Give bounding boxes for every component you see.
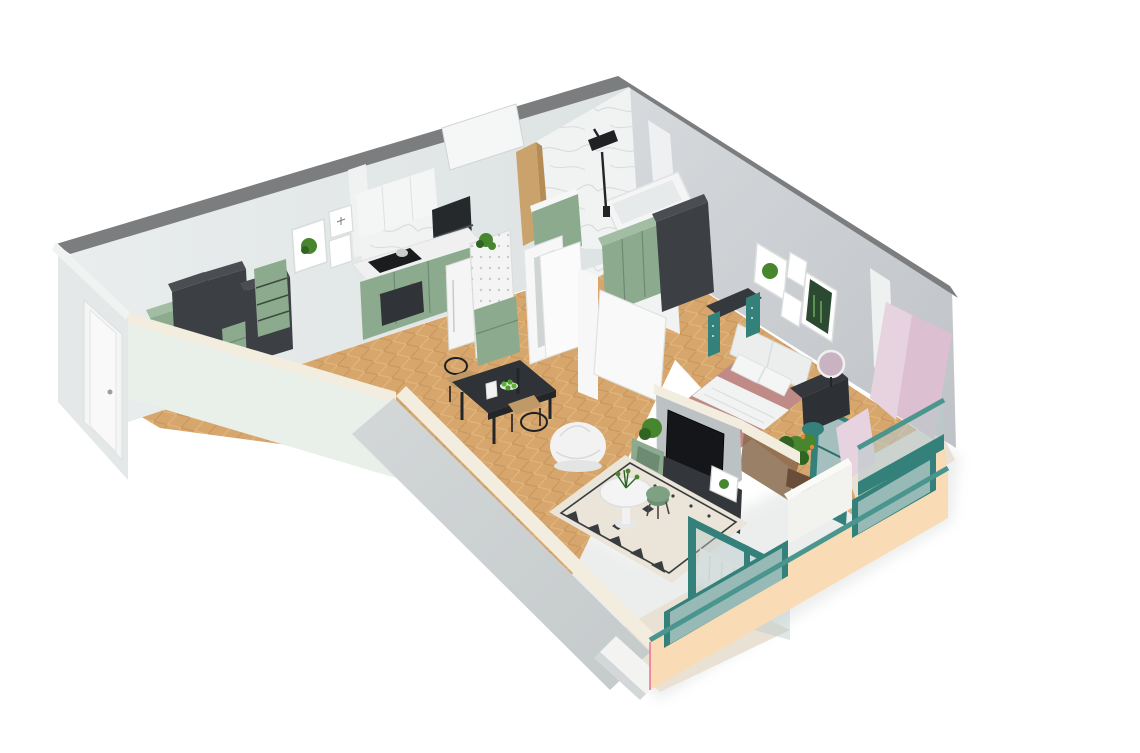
entry-door-handle bbox=[108, 390, 113, 395]
desk-side-left bbox=[708, 311, 720, 357]
green-apple bbox=[507, 379, 512, 384]
bedroom-door-frame bbox=[578, 268, 598, 400]
fridge-handle bbox=[453, 280, 454, 332]
vase bbox=[486, 381, 497, 399]
floor-plan-stage bbox=[0, 0, 1140, 753]
desk-hole bbox=[751, 317, 753, 319]
art-leaf bbox=[762, 263, 778, 279]
sage-open-shelf bbox=[254, 259, 290, 337]
round-mirror bbox=[818, 351, 844, 377]
floor-plan-canvas bbox=[0, 0, 1140, 753]
desk-hole bbox=[712, 325, 714, 327]
green-apple bbox=[501, 381, 506, 386]
hand-shower bbox=[603, 206, 610, 217]
art-plant-leaves-dark bbox=[301, 246, 309, 254]
teal-stool bbox=[802, 422, 824, 436]
green-apple bbox=[505, 385, 510, 390]
cooking-pot bbox=[396, 249, 408, 257]
leaning-frame-print bbox=[719, 479, 729, 489]
bean-bag bbox=[550, 422, 606, 472]
desk-hole bbox=[751, 307, 753, 309]
desk-hole bbox=[712, 335, 714, 337]
desk-side-right bbox=[746, 292, 760, 338]
green-apple bbox=[511, 383, 516, 388]
table-top bbox=[600, 477, 652, 507]
